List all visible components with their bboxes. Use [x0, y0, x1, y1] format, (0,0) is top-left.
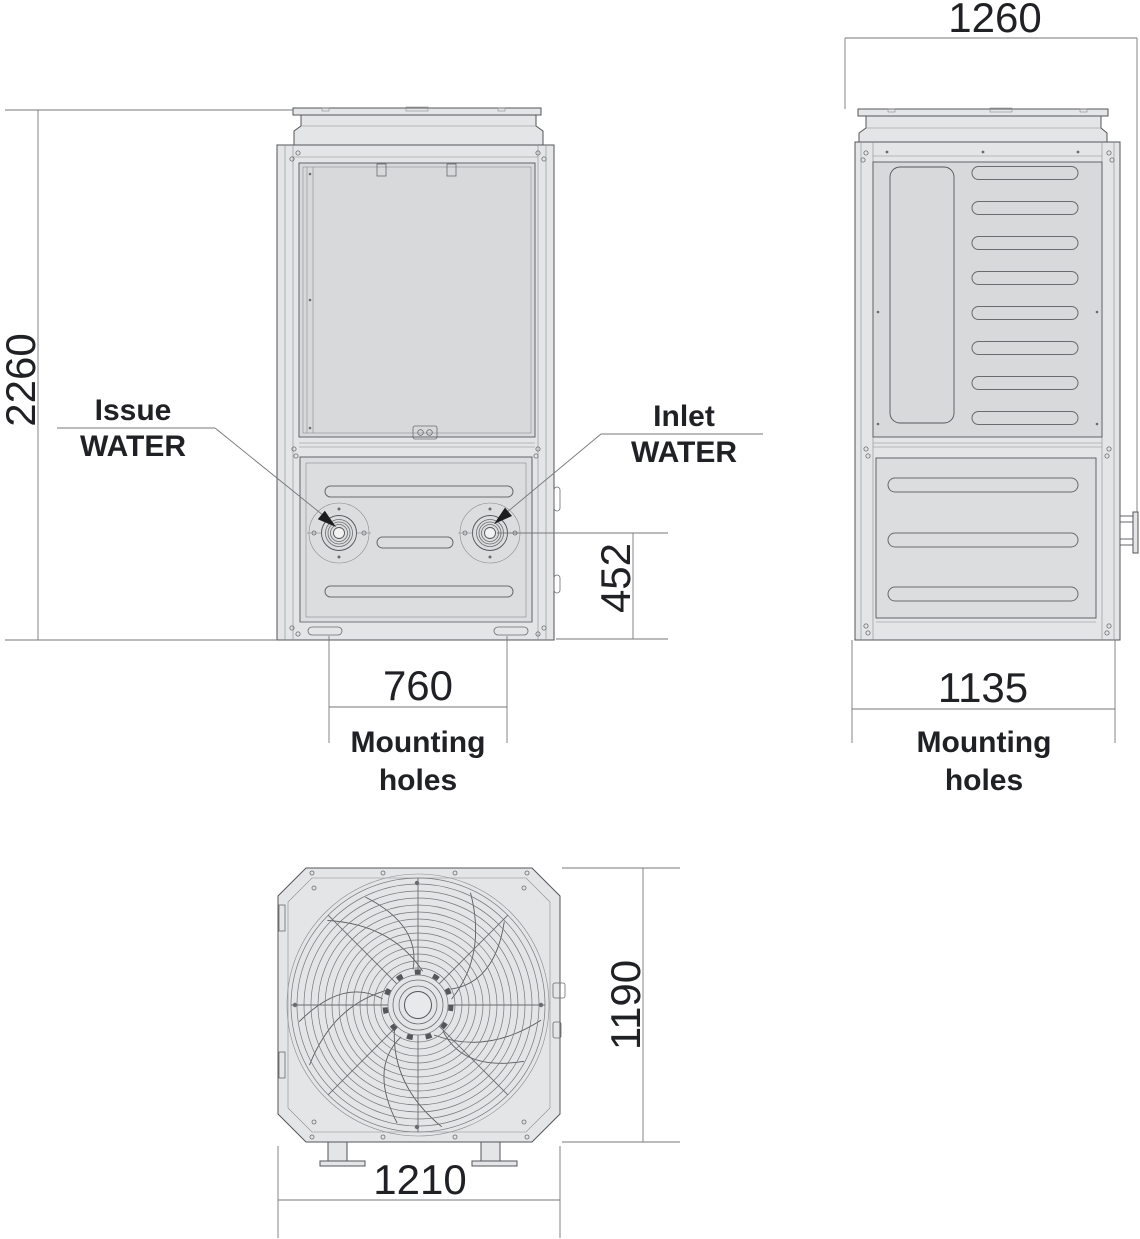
panel-screw — [877, 423, 880, 426]
ring-bolt — [415, 1125, 419, 1129]
bolt-mark — [489, 508, 492, 511]
strip-screw — [309, 427, 312, 430]
ring-bolt — [293, 1003, 297, 1007]
strip-screw — [309, 299, 312, 302]
drawing-page: 2260 452 760 Mounting holes 1260 1135 Mo… — [0, 0, 1140, 1239]
inlet-label-line1: Inlet — [653, 400, 715, 433]
bolt-mark — [338, 556, 341, 559]
side-tab — [554, 487, 560, 511]
side-lower-panel — [876, 458, 1096, 618]
dim-bottom-width: 1210 — [373, 1156, 466, 1203]
side-access-panel — [890, 167, 954, 423]
dim-side-width: 1260 — [948, 0, 1041, 41]
bolt-mark — [338, 508, 341, 511]
strip-screw — [309, 173, 312, 176]
front-top-collar — [294, 115, 543, 145]
dim-water-height: 452 — [592, 543, 639, 613]
side-top-plate — [858, 109, 1108, 116]
dim-front-mounting: 760 — [383, 662, 453, 709]
pipe-bore — [485, 528, 496, 539]
ring-bolt — [415, 881, 419, 885]
side-mounting-caption-1: Mounting — [917, 726, 1052, 759]
pipe-bore — [334, 528, 345, 539]
foot-flange — [320, 1161, 365, 1166]
front-view — [277, 107, 560, 640]
bolt-mark — [489, 556, 492, 559]
dim-side-mounting: 1135 — [938, 664, 1028, 711]
panel-screw — [1096, 423, 1099, 426]
panel-screw — [1096, 311, 1099, 314]
foot-flange — [472, 1161, 517, 1166]
rail-screw — [886, 151, 889, 154]
front-mounting-caption-1: Mounting — [351, 726, 486, 759]
side-view — [855, 108, 1138, 640]
hub-bore — [405, 992, 432, 1019]
foot-stem — [481, 1142, 500, 1162]
front-mounting-caption-2: holes — [379, 764, 457, 797]
panel-screw — [877, 311, 880, 314]
issue-label-line1: Issue — [95, 394, 172, 427]
inlet-label-line2: WATER — [631, 436, 737, 469]
front-upper-panel — [299, 163, 535, 437]
side-tab — [554, 575, 560, 593]
dim-bottom-depth: 1190 — [602, 960, 649, 1050]
pipe-stub — [1120, 512, 1138, 553]
front-top-plate — [293, 108, 541, 115]
ring-bolt — [539, 1003, 543, 1007]
bottom-view — [278, 868, 565, 1166]
pipe-flange — [1133, 512, 1138, 553]
side-top-collar — [859, 116, 1107, 142]
rail-screw — [1077, 151, 1080, 154]
dim-front-height: 2260 — [0, 333, 44, 426]
side-mounting-caption-2: holes — [945, 764, 1023, 797]
technical-drawing: 2260 452 760 Mounting holes 1260 1135 Mo… — [0, 0, 1140, 1239]
issue-label-line2: WATER — [80, 430, 186, 463]
rail-screw — [982, 151, 985, 154]
foot-stem — [328, 1142, 347, 1162]
